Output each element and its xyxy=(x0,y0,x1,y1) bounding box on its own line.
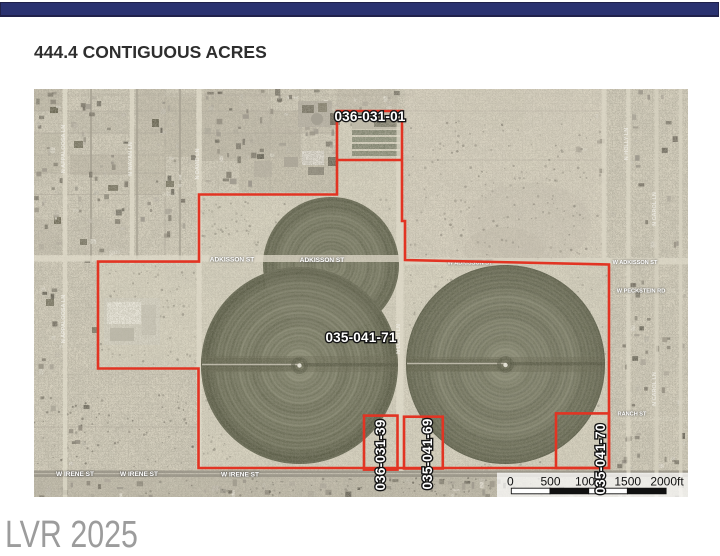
svg-text:2000ft: 2000ft xyxy=(650,475,684,489)
svg-text:W IRENE ST: W IRENE ST xyxy=(56,471,94,478)
svg-text:N CAROL LN: N CAROL LN xyxy=(652,192,658,226)
svg-text:ADKISSON ST: ADKISSON ST xyxy=(300,257,344,264)
svg-text:N WAYAN LN: N WAYAN LN xyxy=(128,142,134,176)
svg-text:N APPALOOSA LN: N APPALOOSA LN xyxy=(61,295,67,343)
svg-text:N APPALOOSA LN: N APPALOOSA LN xyxy=(61,125,67,173)
svg-text:035-041-69: 035-041-69 xyxy=(420,418,435,489)
svg-text:N LOCH LN: N LOCH LN xyxy=(396,324,402,354)
svg-text:0: 0 xyxy=(507,475,514,489)
svg-text:W ADKISSON ST: W ADKISSON ST xyxy=(613,260,658,266)
svg-text:500: 500 xyxy=(540,475,560,489)
svg-text:N DAVID LN: N DAVID LN xyxy=(195,148,201,179)
svg-text:W IRENE ST: W IRENE ST xyxy=(221,472,259,479)
svg-text:035-041-70: 035-041-70 xyxy=(593,423,608,494)
svg-text:N HOLLY LN: N HOLLY LN xyxy=(624,128,630,160)
svg-text:036-031-01: 036-031-01 xyxy=(334,109,405,124)
svg-text:ADKISSON ST: ADKISSON ST xyxy=(210,257,254,264)
svg-text:RANCH ST: RANCH ST xyxy=(618,412,647,418)
svg-text:035-041-71: 035-041-71 xyxy=(325,330,396,345)
svg-text:1500: 1500 xyxy=(614,475,641,489)
svg-text:W IRENE ST: W IRENE ST xyxy=(120,471,158,478)
svg-text:W PECKSTEIN RD: W PECKSTEIN RD xyxy=(617,289,665,295)
svg-text:N CAROL LN: N CAROL LN xyxy=(652,372,658,406)
svg-text:036-031-39: 036-031-39 xyxy=(373,419,388,490)
